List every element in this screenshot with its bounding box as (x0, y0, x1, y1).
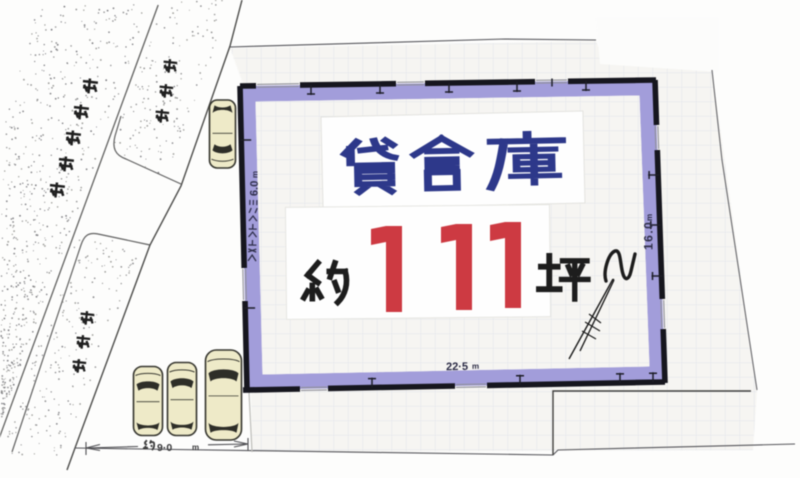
svg-text:m: m (645, 214, 654, 221)
svg-text:m: m (250, 171, 259, 178)
svg-text:22·5: 22·5 (446, 361, 468, 373)
svg-text:16.0: 16.0 (642, 221, 656, 250)
svg-text:9·0: 9·0 (157, 442, 172, 454)
svg-text:6.0: 6.0 (248, 181, 260, 197)
svg-text:m: m (472, 362, 479, 371)
svg-text:m: m (192, 443, 199, 452)
